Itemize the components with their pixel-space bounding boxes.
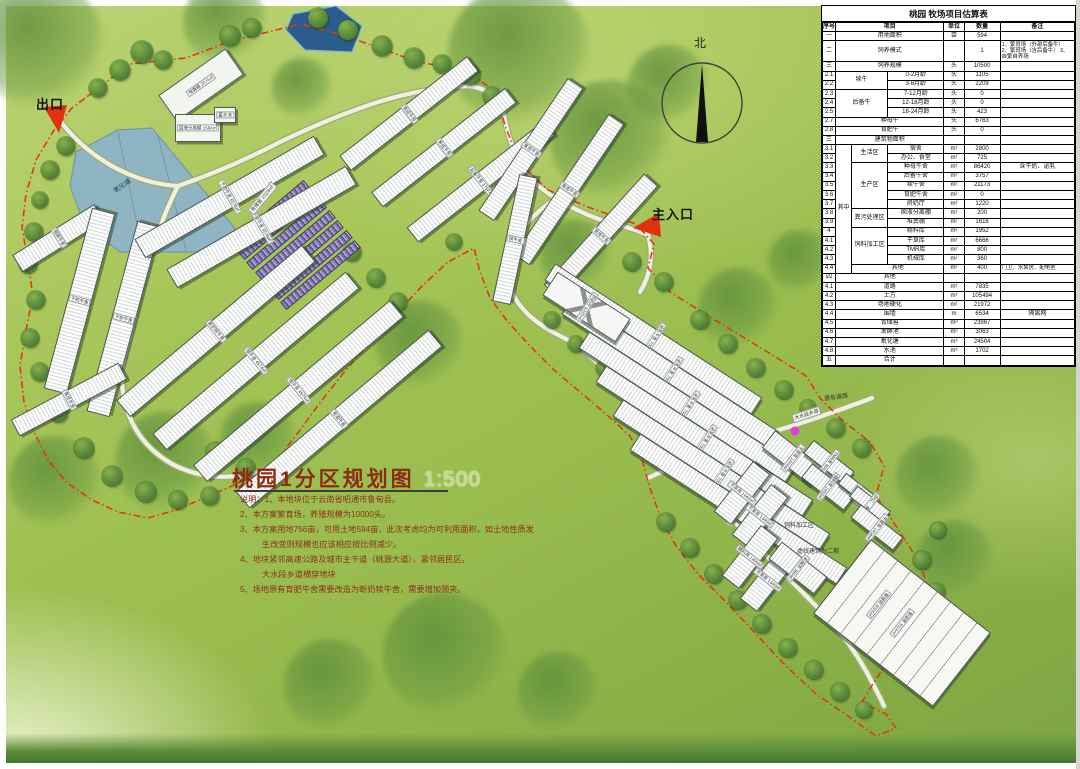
table-cell: 后备牛舍 [888,172,944,181]
table-cell: 12-18月龄 [888,99,944,108]
table-cell: m² [944,191,964,200]
table-cell: 发酵池 [836,328,944,337]
table-cell: 三 [823,62,836,71]
table-row: 四其他 [823,273,1075,282]
building-label: 机械库 360㎡ [786,554,811,583]
table-cell: m³ [944,319,964,328]
table-cell: m³ [944,347,964,356]
building-label: 干草库 1440㎡ [727,480,758,506]
table-cell: 3.1 [823,145,836,154]
table-row: 一用地面积亩594 [823,32,1075,41]
building-label: 育成牛舍 [61,388,78,411]
table-cell: 400 [964,264,1000,273]
table-cell [1000,246,1074,255]
table-cell: 3.3 [823,163,836,172]
table-cell [944,135,964,144]
table-cell: 一 [823,32,836,41]
table-cell: m² [944,218,964,227]
table-cell: 2.8 [823,126,836,135]
table-cell: m² [944,255,964,264]
note-line: 说明：1、本地块位于云南省昭通市鲁甸县。 [240,492,534,507]
table-cell: 4.6 [823,328,836,337]
table-cell: 其他 [852,264,944,273]
table-cell: 24504 [964,338,1000,347]
building-label: 蓄水池 [216,111,234,118]
table-cell: m² [944,163,964,172]
table-cell: 800 [964,246,1000,255]
table-cell: 干草库 [888,236,944,245]
feed-zone-label: 饲料加工区 [784,520,814,529]
tree [136,482,156,502]
table-cell: 6763 [964,117,1000,126]
table-cell: 数量 [964,23,1000,32]
table-cell: 4.8 [823,347,836,356]
page-title: 桃园1分区规划图 1:500 [232,463,481,493]
table-cell: 0 [964,89,1000,98]
table-cell: 土方 [836,292,944,301]
table-row: 序号项目单位数量备注 [823,23,1075,32]
tree [691,311,709,329]
table-cell: TMR库 [888,246,944,255]
table-cell: 3.6 [823,191,836,200]
table-cell [1000,80,1074,89]
exit-label: 出口 [36,94,64,113]
building-label: 干奶牛舍 [111,313,134,326]
table-cell [1000,62,1074,71]
building-label: 育成牛舍 [329,408,349,429]
table-cell: 饲养规模 [836,62,944,71]
table-row: 4.5青储窖m³23967 [823,319,1075,328]
main-entrance-label: 主入口 [652,204,694,223]
table-cell: m² [944,227,964,236]
table-cell: 6666 [964,236,1000,245]
tree [623,253,641,271]
tree [41,161,59,179]
north-label: 北 [694,34,706,51]
table-cell: m² [944,236,964,245]
note-line: 大水段乡道横穿地块 [240,567,534,582]
table-cell: 4.7 [823,338,836,347]
table-cell: 2.4 [823,99,836,108]
building-label: 青储窖 3024㎡ [865,589,891,620]
building-label: 犊牛舍 4574㎡ [285,376,312,406]
table-cell: 4.5 [823,319,836,328]
building-label: 育成牛舍 [590,225,611,245]
note-line: 3、本方案用地756亩，可用土地594亩，此次考虑均为可利用面积，如土地性质发 [240,522,534,537]
table-cell: 犊牛舍 [888,181,944,190]
building-label: 堆粪棚 2574㎡ [185,73,216,98]
table-cell: m² [944,209,964,218]
table-cell: 3757 [964,172,1000,181]
table-cell: 道路 [836,282,944,291]
building: 蓄水池 [214,107,236,123]
tree [753,615,771,633]
table-cell: 种母牛舍 [888,163,944,172]
table-cell [1000,255,1074,264]
table-cell: 机械库 [888,255,944,264]
table-cell [944,273,964,282]
building-label: 干草库 1440㎡ [753,567,784,593]
table-cell: 2.3 [823,89,836,98]
table-cell: 五 [823,356,836,365]
table-cell [1000,126,1074,135]
table-cell: m² [944,154,964,163]
table-cell: 头 [944,89,964,98]
table-row: 3.8粪污处理区固液分离棚m²200 [823,209,1075,218]
table-cell: 亩 [944,32,964,41]
table-cell: 宿舍 [888,145,944,154]
table-cell [1000,32,1074,41]
tree [930,522,946,538]
table-cell: 4.2 [823,246,836,255]
tree [74,438,94,458]
site-plan-page: 隔离牛舍干奶牛舍干奶牛舍断奶犊牛舍犊牛舍 4574㎡犊牛舍 4574㎡育成牛舍干… [0,0,1080,769]
tree [220,26,240,46]
table-cell [1000,319,1074,328]
table-cell: 围墙 [836,310,944,319]
table-cell: 725 [964,154,1000,163]
table-row: 4.3场地硬化m²21972 [823,301,1075,310]
table-cell: 四 [823,273,836,282]
table-cell [964,356,1000,365]
table-cell: 2.5 [823,108,836,117]
table-cell: m² [944,200,964,209]
table-cell: 合计 [836,356,944,365]
table-cell: 1616 [964,218,1000,227]
table-cell: 育肥牛舍 [888,191,944,200]
table-cell: 项目 [836,23,944,32]
table-cell: 后备牛 [836,89,888,117]
tree [131,41,153,63]
tree [681,539,699,557]
table-cell: 6534 [964,310,1000,319]
tree [201,487,219,505]
table-cell: 水池 [836,347,944,356]
table-cell: 头 [944,62,964,71]
tree [805,661,823,679]
building-label: 精料库 1400㎡ [735,544,766,570]
table-cell [1000,200,1074,209]
building-label: 犊牛舍 [506,234,525,245]
table-cell: 4.2 [823,292,836,301]
estimate-table-title: 桃园 牧场项目估算表 [822,6,1075,22]
table-cell: 犊牛 [836,71,888,89]
table-cell [1000,282,1074,291]
table-cell: 序号 [823,23,836,32]
table-row: 2.7种母牛头6763 [823,117,1075,126]
table-cell: 1105 [964,71,1000,80]
building-label: 育成牛舍 [558,180,580,198]
building-label: 隔离牛舍 [49,227,67,249]
table-cell: 4.3 [823,255,836,264]
building-label: 干奶牛舍 [67,295,90,308]
table-cell: 氧化塘 [836,338,944,347]
table-cell [1000,227,1074,236]
tree [544,312,560,328]
table-cell: 0 [964,99,1000,108]
tree [372,36,392,56]
tree [719,335,737,353]
table-cell [964,135,1000,144]
tree [169,491,187,509]
tree [779,639,797,657]
table-cell [964,273,1000,282]
table-cell: 0 [964,126,1000,135]
table-cell: 2800 [964,145,1000,154]
table-cell: 固液分离棚 [888,209,944,218]
table-cell [1000,135,1074,144]
table-cell [1000,89,1074,98]
table-cell: 4.1 [823,282,836,291]
table-cell: 堆粪棚 [888,218,944,227]
table-cell [1000,209,1074,218]
tree [338,20,358,40]
table-cell: 423 [964,108,1000,117]
table-cell [1000,191,1074,200]
table-cell: m² [944,172,964,181]
phase2-note-label: 虚线建筑为二期 [797,546,839,555]
table-cell: 头 [944,71,964,80]
table-cell [1000,301,1074,310]
table-cell: 饲养模式 [836,41,944,62]
tree [57,137,75,155]
table-cell: 门卫、水泵房、配电室 [1000,264,1074,273]
tree [27,291,45,309]
table-cell: 18-24月龄 [888,108,944,117]
table-cell: m³ [944,292,964,301]
table-cell [1000,145,1074,154]
table-cell: 4.3 [823,301,836,310]
table-cell: 3.7 [823,200,836,209]
table-cell: 4.4 [823,310,836,319]
table-row: 4.4围墙m6534隔离网 [823,310,1075,319]
tree [827,419,845,437]
tree [446,234,462,250]
tree [747,359,765,377]
table-cell: 360 [964,255,1000,264]
tree [21,329,39,347]
table-cell: 二 [823,41,836,62]
tree [655,273,673,291]
table-cell: 7835 [964,282,1000,291]
tree [913,551,931,569]
table-cell [1000,117,1074,126]
building-label: 精料库 1952㎡ [815,472,841,503]
table-cell: 2209 [964,80,1000,89]
table-cell: 其他 [836,273,944,282]
table-cell: m² [944,264,964,273]
table-cell: 头 [944,108,964,117]
table-row: 3.3生产区种母牛舍m²86420含干奶、泌乳 [823,163,1075,172]
table-cell: 挤奶厅 [888,200,944,209]
note-line: 4、地块紧邻高速公路及城市主干道（桃源大道），紧邻居民区。 [240,552,534,567]
building-label: 育成牛舍 [520,140,542,158]
table-cell: 头 [944,117,964,126]
table-cell: 生产区 [852,163,888,209]
tree [705,565,723,583]
table-cell: 2.1 [823,71,836,80]
table-cell: 4.1 [823,236,836,245]
building-label: 固液分离棚 1584㎡ [177,124,219,131]
note-line: 2、本方案繁育场，养殖规模为10000头。 [240,507,534,522]
table-cell: 其中 [836,145,852,274]
table-cell: 1702 [964,347,1000,356]
table-cell: 2.2 [823,80,836,89]
table-cell: 单位 [944,23,964,32]
table-cell: m² [944,301,964,310]
table-cell [944,41,964,62]
table-cell: 1952 [964,227,1000,236]
table-cell: 3.9 [823,218,836,227]
tree [308,8,328,28]
table-cell: 3.5 [823,181,836,190]
building-label: 育成牛舍 [399,102,418,124]
tree [110,60,130,80]
table-cell: 头 [944,126,964,135]
table-cell: 3.2 [823,154,836,163]
table-cell: 4 [823,227,836,236]
tree [404,48,424,68]
building-label: 干奶牛舍 6576㎡ [216,179,241,215]
table-cell: m³ [944,338,964,347]
table-row: 4.8水池m³1702 [823,347,1075,356]
table-cell: 7-12月龄 [888,89,944,98]
table-row: 二饲养模式11、繁育场（外部后备牛） 2、繁育场（含后备牛） 3、自繁自养场 [823,41,1075,62]
table-row: 3.1其中生活区宿舍m²2800 [823,145,1075,154]
table-cell [1000,99,1074,108]
table-cell [1000,172,1074,181]
table-cell [1000,181,1074,190]
building-label: 干草库 1404㎡ [780,443,806,474]
table-cell: 场地硬化 [836,301,944,310]
table-cell: 隔离网 [1000,310,1074,319]
table-row: 2.3后备牛7-12月龄头0 [823,89,1075,98]
tree [243,19,261,37]
note-line: 生改变则规模也应该相应按比例减少。 [240,537,534,552]
table-cell: m² [944,145,964,154]
table-cell: 0 [964,191,1000,200]
building-label: 断奶犊牛舍 [205,319,228,344]
tree [102,466,122,486]
table-cell: 2.7 [823,117,836,126]
table-row: 三饲养规模头10500 [823,62,1075,71]
plan-scale: 1:500 [424,468,482,491]
table-cell: 头 [944,80,964,89]
table-row: 4.2土方m³105494 [823,292,1075,301]
table-cell [1000,108,1074,117]
plan-notes: 说明：1、本地块位于云南省昭通市鲁甸县。2、本方案繁育场，养殖规模为10000头… [240,492,534,597]
table-cell: 0-2月龄 [888,71,944,80]
table-row: 三建筑物面积 [823,135,1075,144]
table-cell: 23967 [964,319,1000,328]
table-row: 4.6发酵池m³3063 [823,328,1075,337]
magenta-marker-dot [791,427,800,436]
table-row: 4饲料加工区精料库m²1952 [823,227,1075,236]
table-cell: 1 [964,41,1000,62]
table-cell [1000,154,1074,163]
table-cell [1000,218,1074,227]
table-cell: m [944,310,964,319]
building-label: 挤奶厅 1220㎡ [574,291,598,323]
table-row: 4.1道路m²7835 [823,282,1075,291]
table-cell: m³ [944,328,964,337]
tree [32,192,48,208]
table-cell: 饲料加工区 [852,227,888,264]
table-cell: 21972 [964,301,1000,310]
building-label: 干草库 1404㎡ [864,512,890,543]
table-cell: 三 [823,135,836,144]
north-arrow [662,63,742,143]
building-label: 犊牛舍 4574㎡ [243,346,270,376]
tree [831,683,849,701]
table-cell: 种母牛 [836,117,944,126]
estimate-table-grid: 序号项目单位数量备注一用地面积亩594二饲养模式11、繁育场（外部后备牛） 2、… [822,22,1075,366]
table-cell: 594 [964,32,1000,41]
table-cell: m² [944,282,964,291]
table-row: 2.1犊牛0-2月龄头1105 [823,71,1075,80]
table-cell [944,356,964,365]
plan-title-text: 桃园1分区规划图 [232,468,415,491]
table-cell: 1、繁育场（外部后备牛） 2、繁育场（含后备牛） 3、自繁自养场 [1000,41,1074,62]
table-cell: 200 [964,209,1000,218]
table-cell: 3.4 [823,172,836,181]
table-cell [1000,328,1074,337]
table-cell: 备注 [1000,23,1074,32]
table-cell: 3-6月龄 [888,80,944,89]
table-cell: m² [944,246,964,255]
table-cell [1000,356,1074,365]
table-cell: 86420 [964,163,1000,172]
table-cell [1000,273,1074,282]
table-cell: 头 [944,99,964,108]
estimate-table: 桃园 牧场项目估算表 序号项目单位数量备注一用地面积亩594二饲养模式11、繁育… [821,5,1076,367]
table-cell: m² [944,181,964,190]
table-row: 4.4其他m²400门卫、水泵房、配电室 [823,264,1075,273]
table-cell: 精料库 [888,227,944,236]
tree [367,269,385,287]
tree [775,381,793,399]
table-cell: 办公、食堂 [888,154,944,163]
building-label: 青储窖 3024㎡ [889,608,915,639]
right-edge-strip [1076,0,1080,769]
table-cell: 3063 [964,328,1000,337]
tree [856,702,872,718]
table-row: 2.8育肥牛头0 [823,126,1075,135]
building-label: 育成牛舍 [434,136,453,158]
table-cell: 建筑物面积 [836,135,944,144]
table-cell: 育肥牛 [836,126,944,135]
tree [89,79,107,97]
table-cell [1000,292,1074,301]
table-cell [1000,347,1074,356]
tree [853,439,871,457]
table-cell [1000,338,1074,347]
table-cell: 青储窖 [836,319,944,328]
table-cell: 用地面积 [836,32,944,41]
table-cell: 生活区 [852,145,888,163]
table-cell: 粪污处理区 [852,209,888,227]
table-cell: 4.4 [823,264,836,273]
tree [154,51,172,69]
table-row: 五合计 [823,356,1075,365]
table-cell [1000,71,1074,80]
table-cell [1000,236,1074,245]
table-row: 4.7氧化塘m³24504 [823,338,1075,347]
table-cell: 105494 [964,292,1000,301]
table-cell: 21173 [964,181,1000,190]
table-cell: 1220 [964,200,1000,209]
table-cell: 含干奶、泌乳 [1000,163,1074,172]
